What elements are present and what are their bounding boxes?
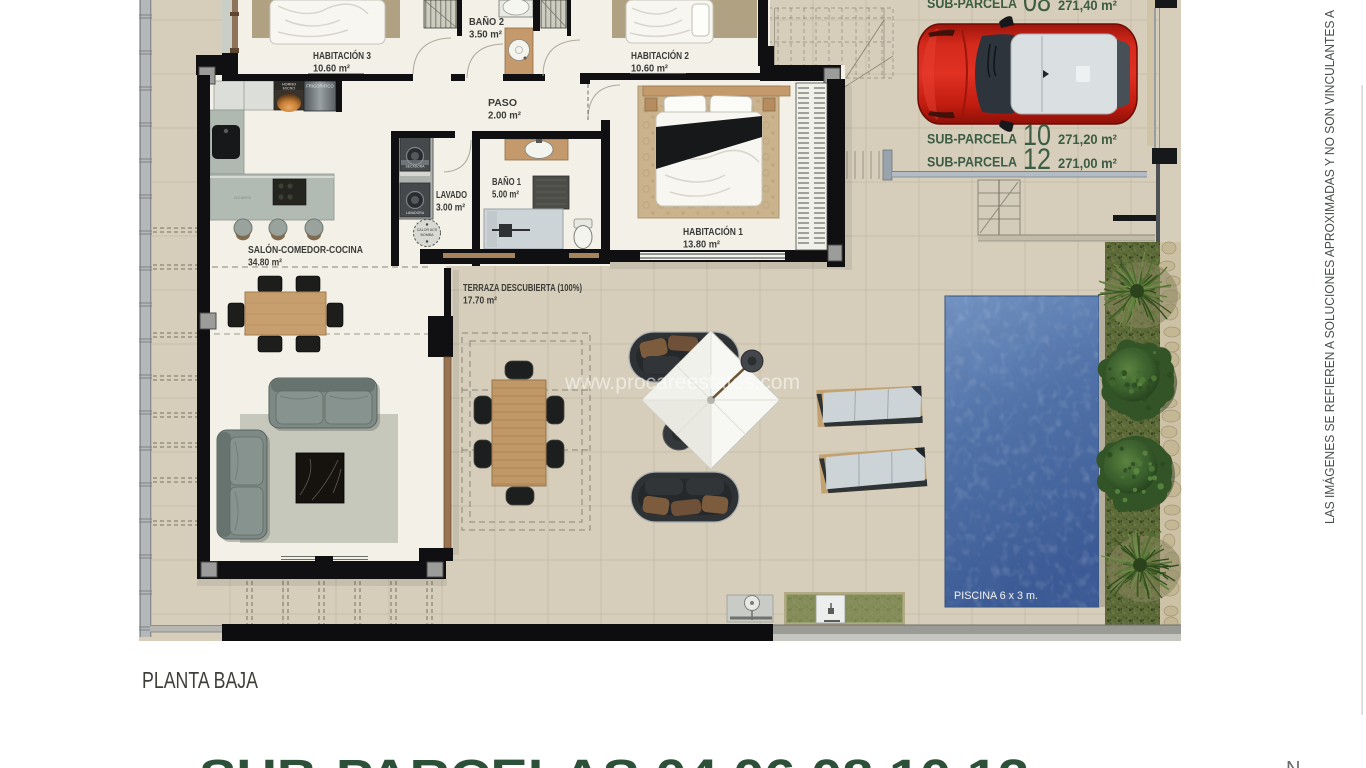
svg-text:271,20 m²: 271,20 m² bbox=[1058, 132, 1117, 147]
svg-text:SUB-PARCELA: SUB-PARCELA bbox=[927, 155, 1017, 170]
svg-text:SUB-PARCELA: SUB-PARCELA bbox=[927, 132, 1017, 147]
svg-text:5.00 m²: 5.00 m² bbox=[492, 190, 520, 201]
svg-text:TERRAZA DESCUBIERTA (100%): TERRAZA DESCUBIERTA (100%) bbox=[463, 283, 582, 294]
svg-text:13.80 m²: 13.80 m² bbox=[683, 240, 721, 251]
svg-text:PISCINA 6 x 3 m.: PISCINA 6 x 3 m. bbox=[954, 590, 1038, 602]
svg-text:ENCIMERA: ENCIMERA bbox=[234, 196, 252, 200]
svg-text:10.60 m²: 10.60 m² bbox=[631, 64, 669, 75]
svg-text:BOMBA: BOMBA bbox=[421, 233, 435, 237]
svg-text:SECADORA: SECADORA bbox=[405, 165, 425, 169]
svg-text:PLANTA BAJA: PLANTA BAJA bbox=[142, 667, 258, 693]
svg-text:CALOR ACS: CALOR ACS bbox=[417, 228, 438, 232]
svg-text:SUB-PARCELAS 04 06 08 10 12: SUB-PARCELAS 04 06 08 10 12 bbox=[199, 751, 1029, 768]
svg-text:BAÑO 1: BAÑO 1 bbox=[492, 175, 521, 188]
svg-text:www.procareestates.com: www.procareestates.com bbox=[564, 371, 800, 394]
svg-text:N: N bbox=[1286, 758, 1300, 768]
svg-text:271,00 m²: 271,00 m² bbox=[1058, 156, 1117, 171]
svg-text:BAÑO 2: BAÑO 2 bbox=[469, 15, 504, 28]
svg-text:PASO: PASO bbox=[488, 98, 517, 109]
svg-text:34.80 m²: 34.80 m² bbox=[248, 258, 283, 269]
svg-text:HABITACIÓN 1: HABITACIÓN 1 bbox=[683, 225, 743, 238]
svg-text:2.00 m²: 2.00 m² bbox=[488, 111, 522, 122]
svg-text:SUB-PARCELA: SUB-PARCELA bbox=[927, 0, 1017, 11]
svg-text:LAVADORA: LAVADORA bbox=[406, 211, 425, 215]
svg-text:3.00 m²: 3.00 m² bbox=[436, 203, 466, 214]
svg-text:08: 08 bbox=[1023, 0, 1051, 18]
svg-text:HABITACIÓN 2: HABITACIÓN 2 bbox=[631, 49, 689, 62]
svg-text:10.60 m²: 10.60 m² bbox=[313, 64, 351, 75]
svg-text:12: 12 bbox=[1023, 143, 1051, 176]
svg-text:MICRO: MICRO bbox=[283, 87, 296, 91]
svg-text:17.70 m²: 17.70 m² bbox=[463, 296, 498, 307]
svg-text:271,40 m²: 271,40 m² bbox=[1058, 0, 1117, 13]
svg-text:SALÓN-COMEDOR-COCINA: SALÓN-COMEDOR-COCINA bbox=[248, 243, 363, 256]
svg-text:LAVADO: LAVADO bbox=[436, 190, 467, 201]
svg-text:3.50 m²: 3.50 m² bbox=[469, 30, 503, 41]
svg-text:LAS IMÁGENES SE REFIEREN A SOL: LAS IMÁGENES SE REFIEREN A SOLUCIONES AP… bbox=[1322, 10, 1337, 524]
svg-text:FRIGORIFICO: FRIGORIFICO bbox=[306, 84, 334, 89]
svg-text:HABITACIÓN 3: HABITACIÓN 3 bbox=[313, 49, 371, 62]
